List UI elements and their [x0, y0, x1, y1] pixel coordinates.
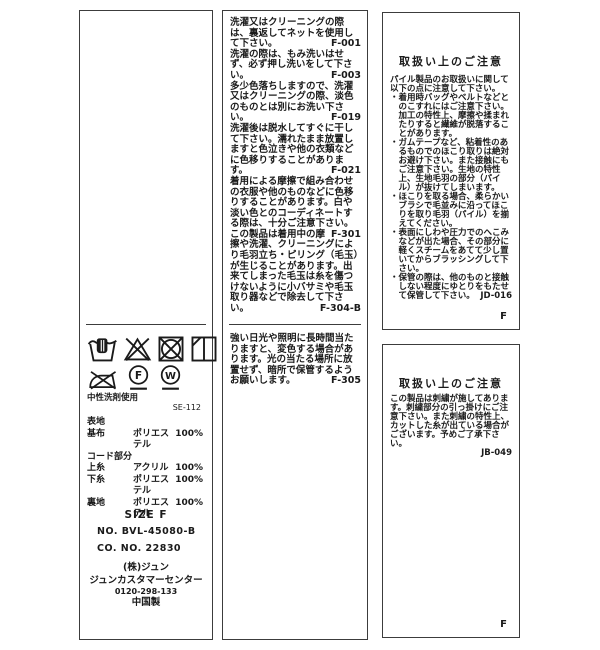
- composition-material: [133, 452, 171, 464]
- panel-divider: [229, 324, 361, 325]
- wash-note: 洗濯後は脱水してすぐに干して下さい。濡れたまま放置しますと色泣きや他の衣類などに…: [230, 124, 361, 177]
- wash-note: 洗濯又はクリーニングの際は、裏返してネットを使用して下さい。F-001: [230, 18, 361, 50]
- care-symbols-row-2: F W: [87, 365, 182, 391]
- pile-care-bullet: ・着用時バッグやベルトなどとのこすれにはご注意下さい。加工の特性上、摩擦や揉まれ…: [390, 94, 512, 139]
- pile-care-code: JD-016: [489, 292, 512, 301]
- pile-care-bullet: ・保管の際は、他のものと接触しない程度にゆとりをもたせて保管して下さい。JD-0…: [390, 274, 512, 301]
- line-dry-in-shade-icon: [190, 335, 218, 363]
- composition-row: コード部分: [87, 452, 203, 464]
- note-code: F-304-B: [320, 304, 361, 315]
- composition-part: コード部分: [87, 452, 133, 464]
- composition-percent: 100%: [171, 463, 203, 475]
- embroidery-care-code: JB-049: [390, 449, 512, 458]
- composition-material: ポリエステル: [133, 475, 171, 498]
- pile-care-bullet: ・ガムテープなど、粘着性のあるものでのほこり取りは絶対お避け下さい。また接触にも…: [390, 139, 512, 193]
- composition-percent: [171, 417, 203, 429]
- composition-row: 上糸 アクリル 100%: [87, 463, 203, 475]
- composition-part: 表地: [87, 417, 133, 429]
- composition-part: 上糸: [87, 463, 133, 475]
- size-mark: F: [500, 311, 507, 322]
- wash-note: 着用による摩擦で組み合わせの衣服や他のものなどに色移りすることがあります。白や淡…: [230, 177, 361, 230]
- wash-instructions-panel: 洗濯又はクリーニングの際は、裏返してネットを使用して下さい。F-001 洗濯の際…: [222, 10, 368, 640]
- pile-care-bullet: ・表面にしわや圧力でのへこみなどが出た場合、その部分に軽くスチームをあてて少し置…: [390, 229, 512, 274]
- care-label-panel: F W 中性洗剤使用 SE-112 表地: [79, 10, 213, 640]
- embroidery-care-text: この製品は刺繍が施してあります。刺繍部分の引っ掛けにご注意下さい。また刺繍の特性…: [390, 395, 512, 449]
- composition-row: 下糸 ポリエステル 100%: [87, 475, 203, 498]
- wash-notes: 洗濯又はクリーニングの際は、裏返してネットを使用して下さい。F-001 洗濯の際…: [230, 18, 361, 315]
- pile-care-intro: パイル製品のお取扱いに関して以下の点に注意して下さい。: [390, 76, 512, 94]
- phone-number: 0120-298-133: [87, 587, 205, 597]
- composition-percent: 100%: [171, 429, 203, 452]
- embroidery-care-body: この製品は刺繍が施してあります。刺繍部分の引っ掛けにご注意下さい。また刺繍の特性…: [390, 395, 512, 458]
- hand-wash-icon: [87, 335, 118, 363]
- composition-material: [133, 417, 171, 429]
- care-tag-sheet: F W 中性洗剤使用 SE-112 表地: [0, 0, 600, 650]
- care-symbols-row-1: [87, 335, 218, 363]
- wash-note: 洗濯の際は、もみ洗いはせず、必ず押し洗いをして下さい。F-003: [230, 50, 361, 82]
- pile-care-panel: 取扱い上のご注意 パイル製品のお取扱いに関して以下の点に注意して下さい。 ・着用…: [382, 12, 520, 330]
- care-content: F W 中性洗剤使用 SE-112 表地: [87, 333, 205, 639]
- company-name: (株)ジュン: [87, 562, 205, 575]
- wet-clean-W-icon: W: [159, 365, 182, 391]
- dry-clean-F-icon: F: [127, 365, 150, 391]
- wash-note: 多少色落ちしますので、洗濯又はクリーニングの際、淡色のものとは別にお洗い下さい。…: [230, 82, 361, 124]
- do-not-iron-icon: [87, 368, 118, 391]
- storage-note: 強い日光や照明に長時間当たりますと、変色する場合があります。光の当たる場所に放置…: [230, 334, 361, 387]
- wet-clean-letter: W: [165, 371, 176, 382]
- note-text: 着用による摩擦で組み合わせの衣服や他のものなどに色移りすることがあります。白や淡…: [230, 176, 354, 229]
- embroidery-care-panel: 取扱い上のご注意 この製品は刺繍が施してあります。刺繍部分の引っ掛けにご注意下さ…: [382, 344, 520, 638]
- pile-care-bullet: ・ほこりを取る場合、柔らかいブラシで毛並みに沿ってほこりを取り毛羽（パイル）を揃…: [390, 193, 512, 229]
- composition-material: ポリエステル: [133, 429, 171, 452]
- composition-percent: [171, 452, 203, 464]
- item-number: NO. BVL-45080-B: [97, 526, 196, 537]
- size-mark: F: [500, 619, 507, 630]
- do-not-bleach-icon: [123, 335, 152, 363]
- company-block: (株)ジュン ジュンカスタマーセンター 0120-298-133 中国製: [87, 562, 205, 610]
- composition-part: 基布: [87, 429, 133, 452]
- composition-part: 下糸: [87, 475, 133, 498]
- do-not-tumble-dry-icon: [157, 335, 185, 363]
- dry-clean-letter: F: [135, 369, 142, 382]
- panel-divider: [86, 324, 206, 325]
- composition-row: 基布 ポリエステル 100%: [87, 429, 203, 452]
- note-text: この製品は着用中の摩擦や洗濯、クリーニングにより毛羽立ち・ピリング（毛玉）が生じ…: [230, 229, 358, 314]
- wash-note: この製品は着用中の摩擦や洗濯、クリーニングにより毛羽立ち・ピリング（毛玉）が生じ…: [230, 230, 361, 315]
- country-of-origin: 中国製: [87, 597, 205, 610]
- customer-center: ジュンカスタマーセンター: [87, 575, 205, 588]
- composition-material: アクリル: [133, 463, 171, 475]
- composition-percent: 100%: [171, 475, 203, 498]
- pile-care-heading: 取扱い上のご注意: [383, 53, 519, 69]
- size-label: SIZE F: [87, 509, 205, 521]
- embroidery-care-heading: 取扱い上のご注意: [383, 375, 519, 391]
- storage-note-section: 強い日光や照明に長時間当たりますと、変色する場合があります。光の当たる場所に放置…: [230, 334, 361, 387]
- composition-table: 表地 基布 ポリエステル 100% コード部分 上糸 アクリル: [87, 417, 203, 521]
- care-label-code: SE-112: [173, 403, 201, 412]
- pile-care-body: パイル製品のお取扱いに関して以下の点に注意して下さい。 ・着用時バッグやベルトな…: [390, 76, 512, 301]
- co-number: CO. NO. 22830: [97, 543, 181, 554]
- note-code: F-305: [331, 376, 361, 387]
- composition-row: 表地: [87, 417, 203, 429]
- detergent-note: 中性洗剤使用: [87, 391, 138, 403]
